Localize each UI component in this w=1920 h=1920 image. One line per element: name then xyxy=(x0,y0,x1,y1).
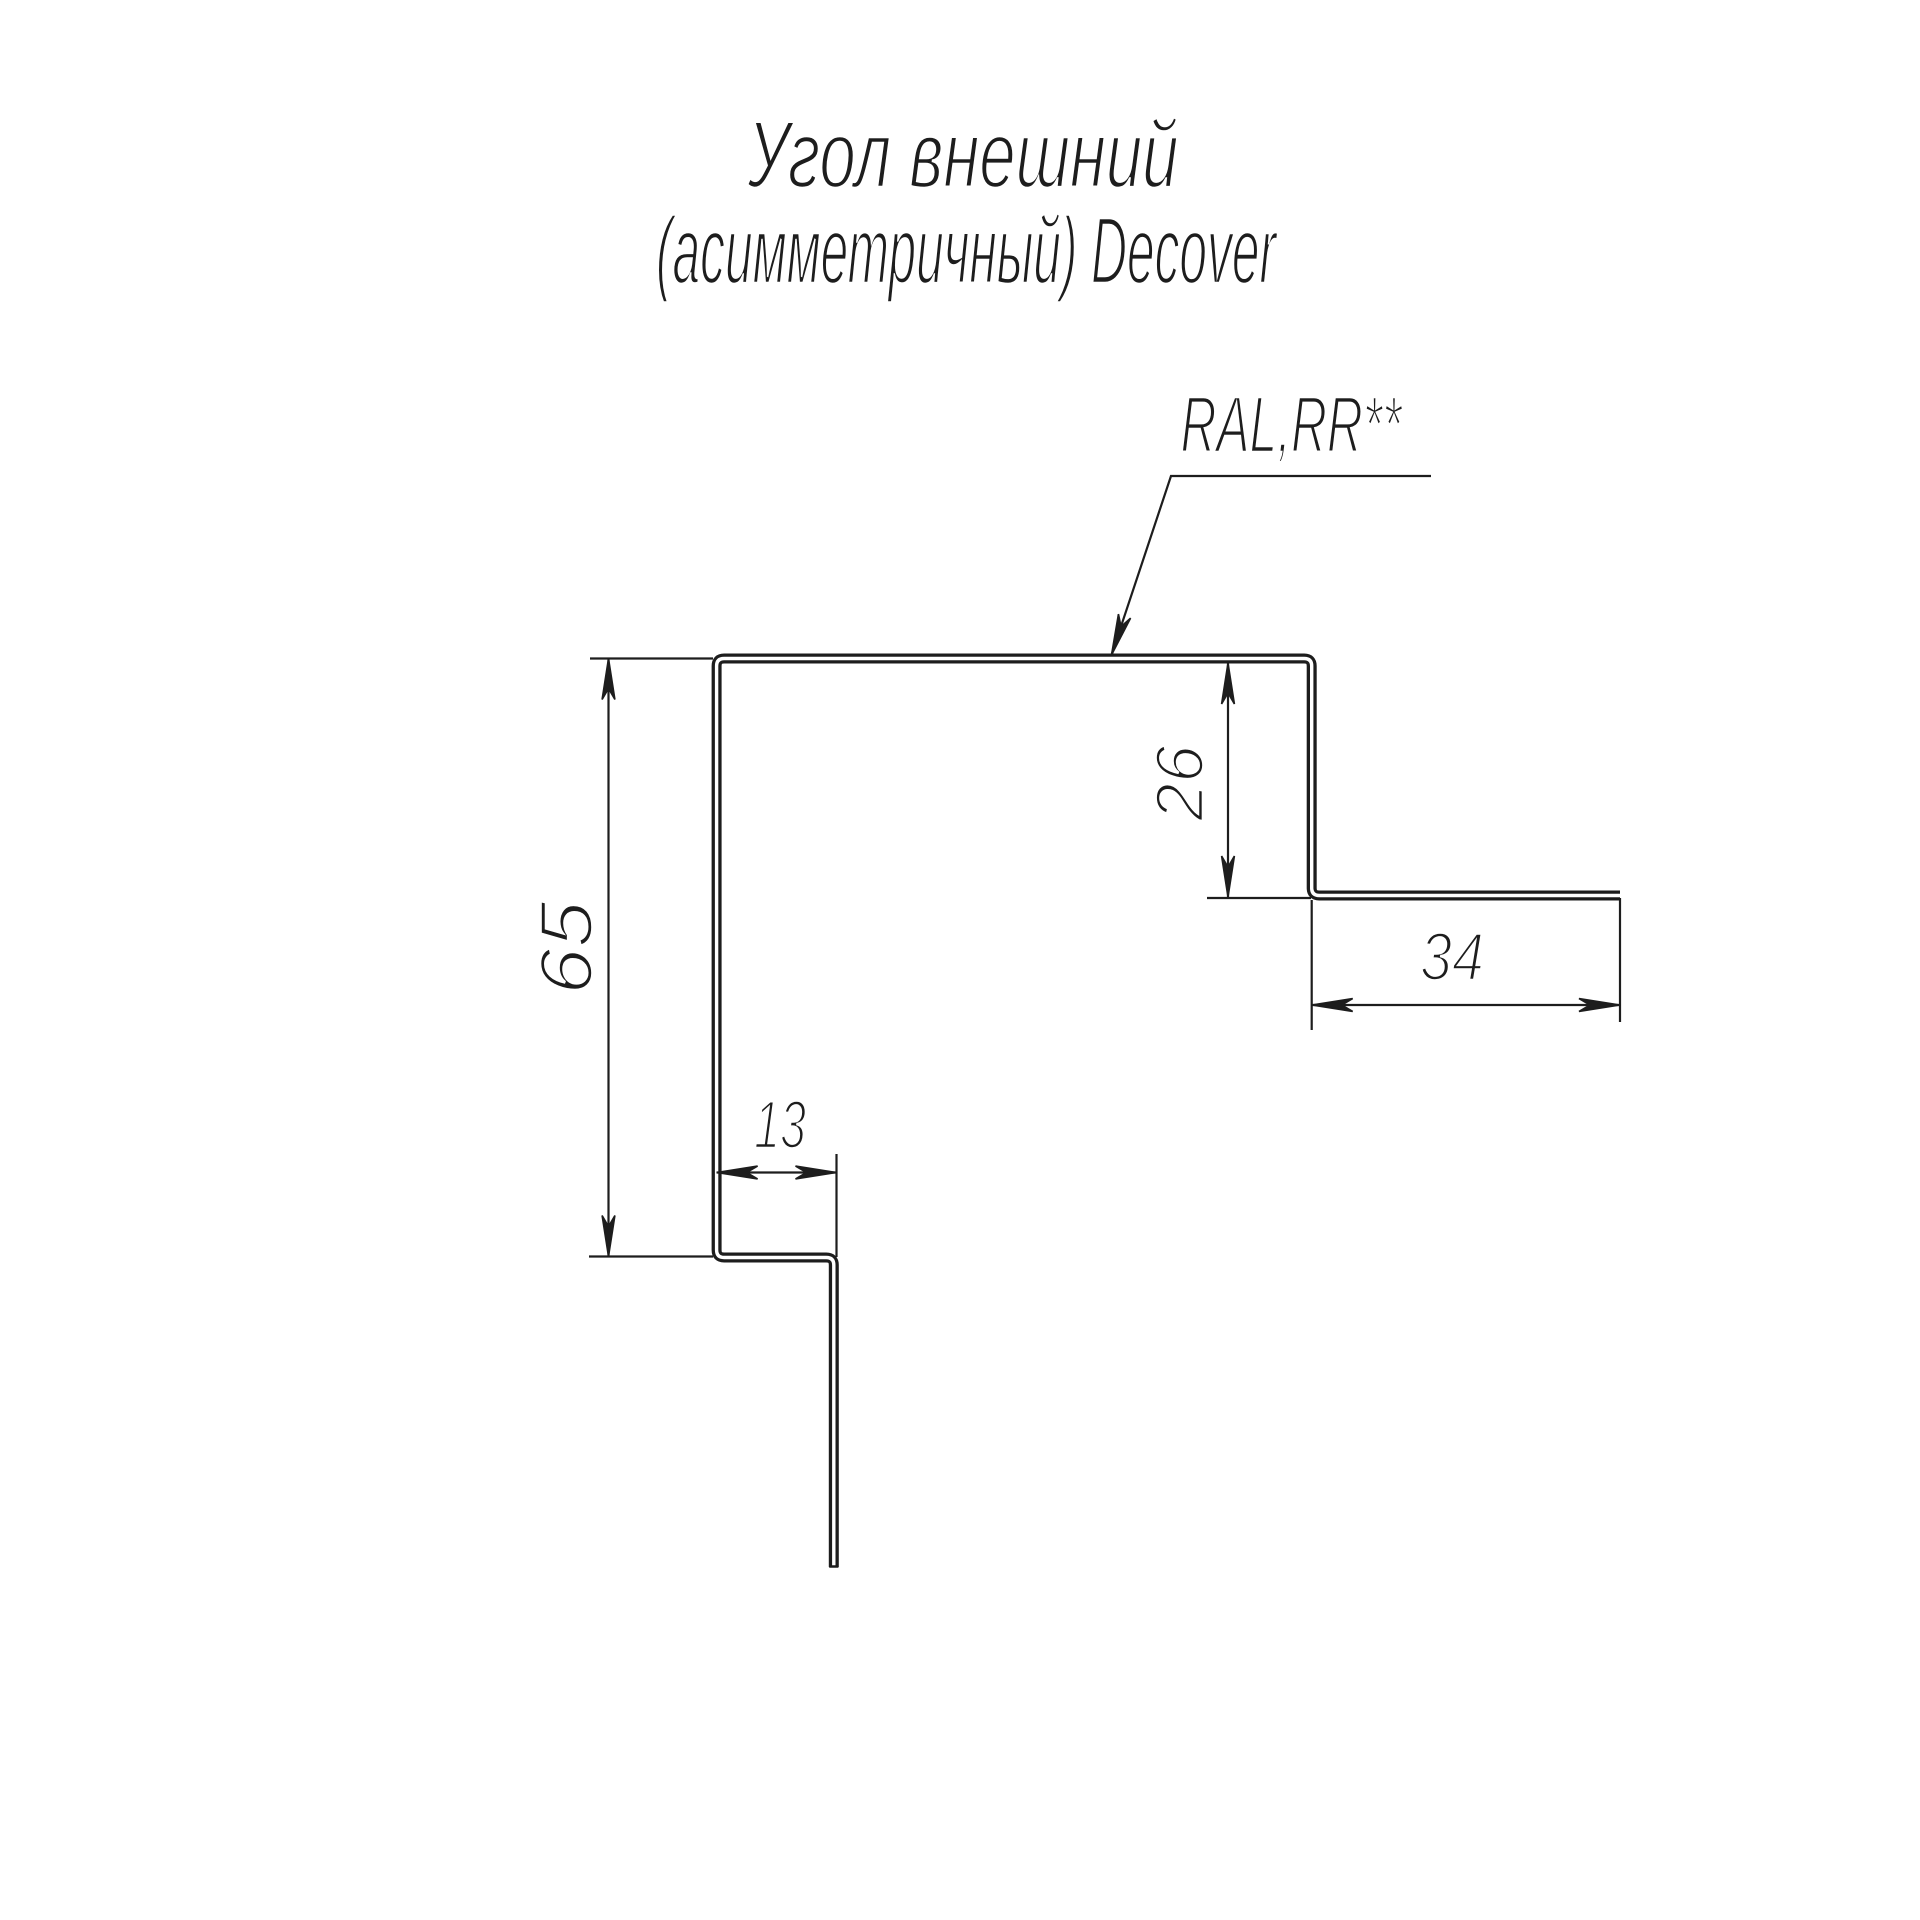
svg-text:RAL,RR**: RAL,RR** xyxy=(1181,380,1404,469)
svg-text:34: 34 xyxy=(1420,919,1484,995)
svg-text:65: 65 xyxy=(525,900,608,995)
svg-text:Угол внешний: Угол внешний xyxy=(747,102,1179,208)
svg-text:(асимметричный) Decover: (асимметричный) Decover xyxy=(656,198,1278,304)
svg-text:13: 13 xyxy=(754,1087,806,1163)
svg-text:26: 26 xyxy=(1142,745,1218,822)
